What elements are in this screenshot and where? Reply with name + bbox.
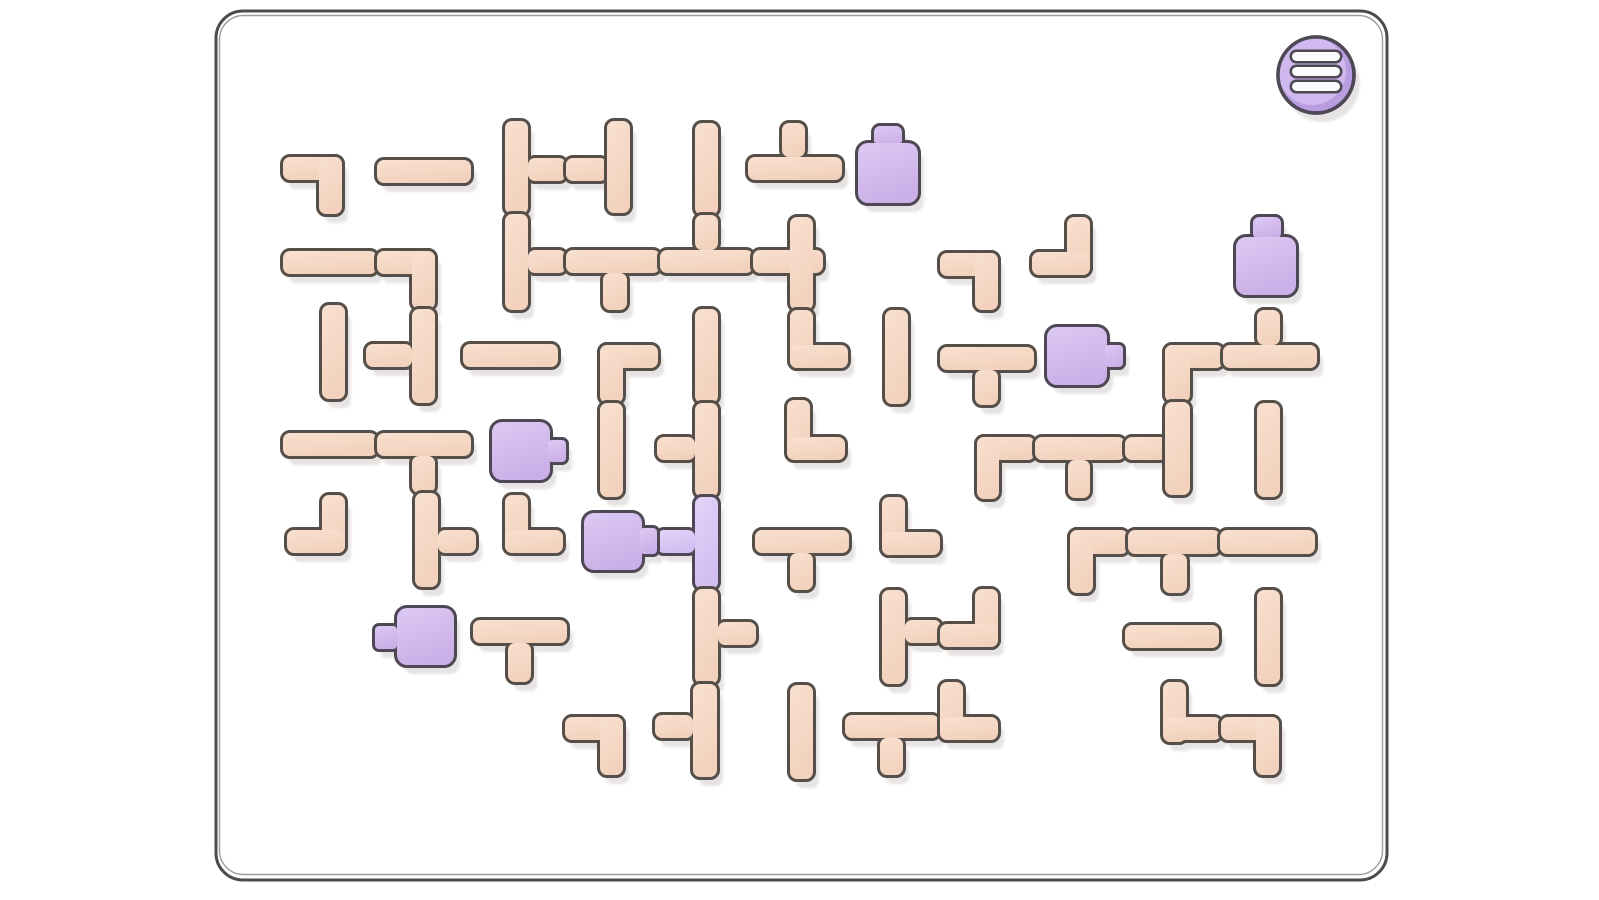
pipe-straight[interactable]: [463, 344, 558, 367]
hamburger-icon: [1292, 52, 1340, 91]
pipe-straight[interactable]: [322, 305, 345, 399]
pipe-straight[interactable]: [377, 160, 471, 183]
pipe-straight[interactable]: [283, 251, 377, 274]
pipe-straight[interactable]: [283, 433, 377, 456]
pipe-straight[interactable]: [1125, 437, 1167, 460]
pipe-straight[interactable]: [790, 685, 813, 779]
pipe-straight[interactable]: [1125, 625, 1219, 648]
pipe-straight[interactable]: [607, 121, 630, 213]
puzzle-scene: [0, 0, 1599, 900]
pipe-straight[interactable]: [1257, 403, 1280, 497]
pipe-straight[interactable]: [695, 123, 718, 215]
pipe-straight[interactable]: [695, 309, 718, 403]
pipe-straight[interactable]: [600, 403, 623, 497]
pipe-straight[interactable]: [1220, 530, 1315, 554]
game-area: [0, 0, 1599, 900]
pipe-straight[interactable]: [885, 310, 908, 404]
pipe-straight[interactable]: [1165, 402, 1190, 495]
pipe-straight[interactable]: [1257, 590, 1280, 684]
pipe-straight[interactable]: [566, 158, 607, 181]
